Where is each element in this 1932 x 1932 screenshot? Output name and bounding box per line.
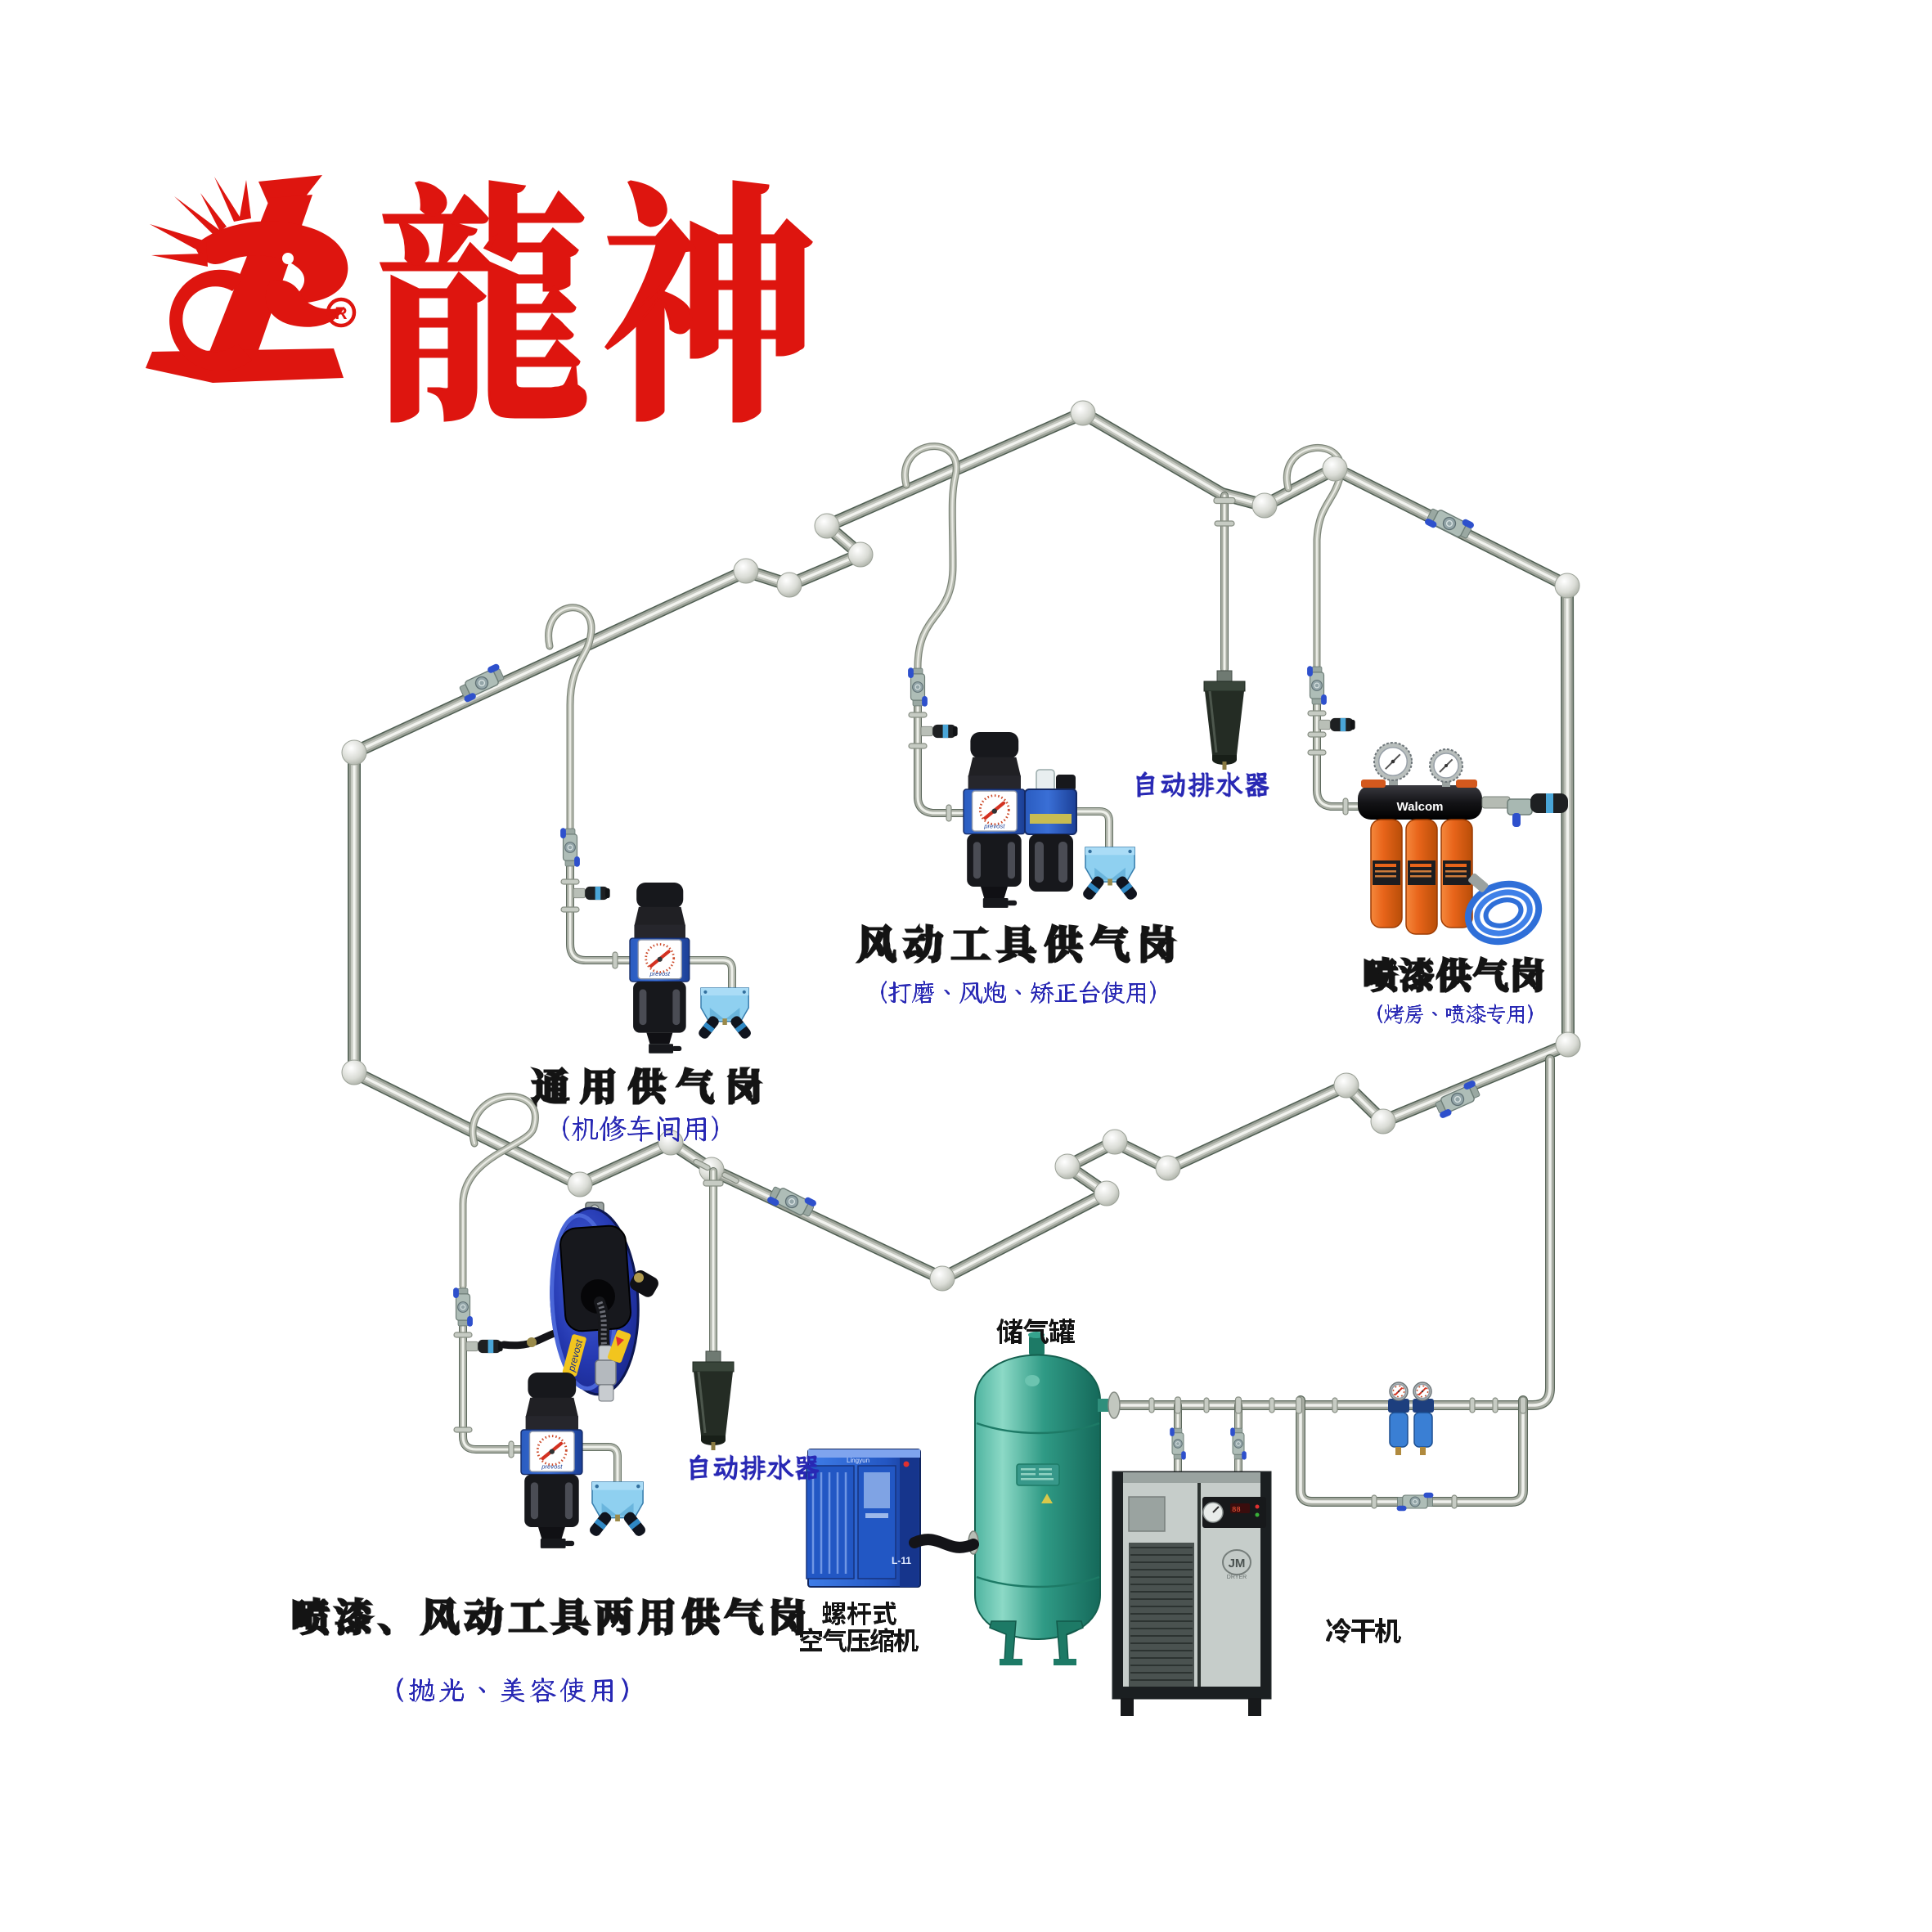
svg-text:DRYER: DRYER — [1227, 1575, 1247, 1580]
svg-text:prevost: prevost — [649, 970, 670, 977]
svg-text:prevost: prevost — [541, 1463, 563, 1471]
svg-text:Lingyun: Lingyun — [847, 1457, 869, 1464]
svg-text:Walcom: Walcom — [1397, 800, 1444, 814]
svg-text:JM: JM — [1229, 1557, 1246, 1570]
svg-text:88: 88 — [1232, 1506, 1241, 1514]
svg-text:R: R — [335, 304, 347, 323]
svg-text:L-11: L-11 — [892, 1555, 911, 1566]
svg-text:prevost: prevost — [983, 823, 1005, 830]
